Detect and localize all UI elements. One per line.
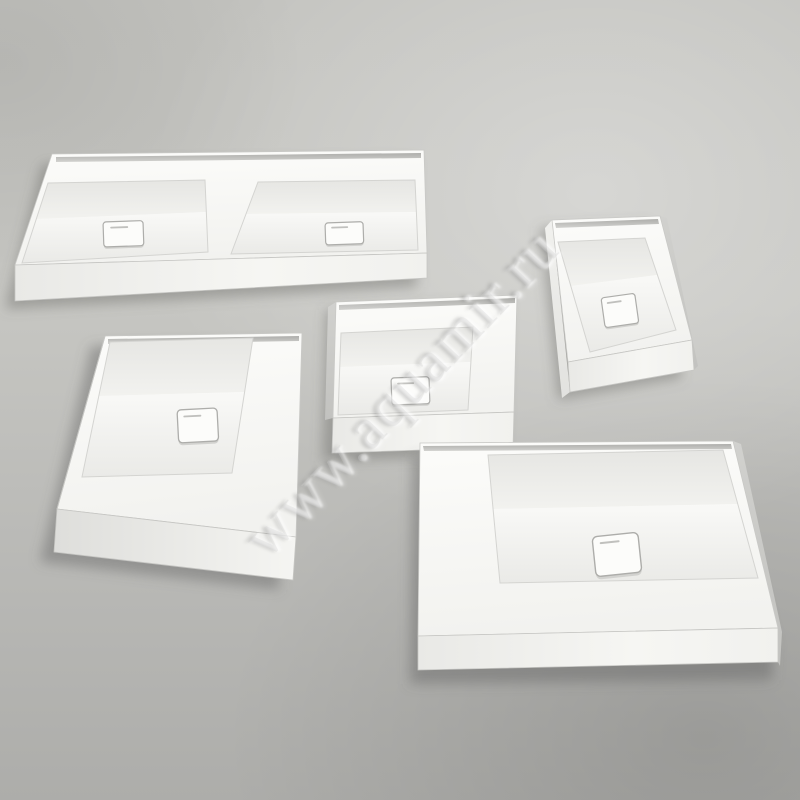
bowl-back-wall [488,450,738,509]
bowl-floor [82,392,245,477]
drain-cover [325,222,364,247]
bowl-back-wall [99,338,253,396]
basin-small [545,216,697,398]
bowl-back-wall [246,180,416,214]
bowl-floor [231,212,418,254]
basin-double [15,148,430,306]
product-photo: www.aquamir.ru [0,0,800,800]
bowl-right [231,180,418,254]
drain-cover [391,377,430,407]
bowl-back-wall [340,327,473,367]
drain-cover [177,408,219,446]
bowl [82,338,253,477]
basin-medium [324,295,519,459]
basin-square [53,333,305,585]
drain-cover [601,293,639,329]
basin-large [416,440,782,702]
drain-cover [103,221,144,249]
drain-cover [592,532,642,580]
